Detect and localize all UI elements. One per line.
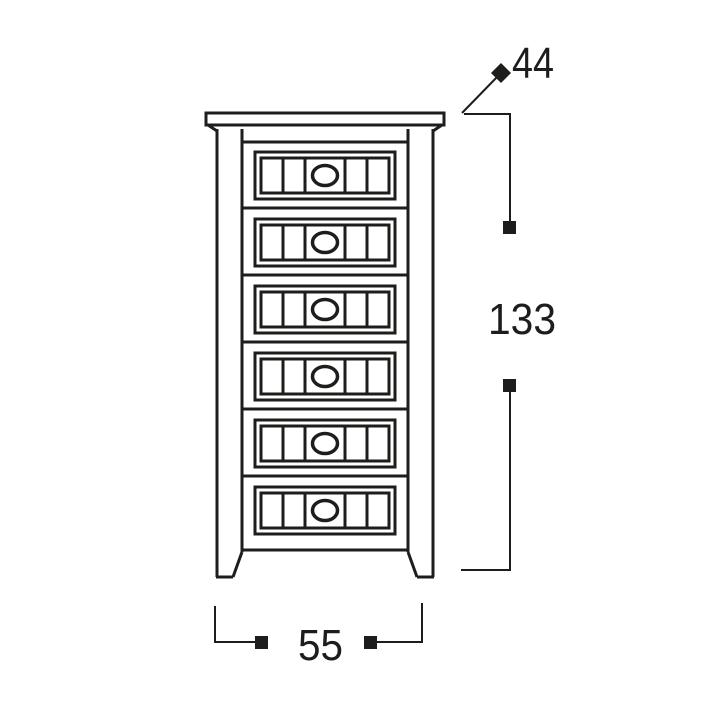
drawer-knob [313, 166, 338, 186]
right-stile-and-leg [408, 129, 434, 577]
drawer-3 [255, 286, 395, 333]
width-value-label: 55 [298, 621, 343, 670]
diagram-canvas: 44 133 55 [0, 0, 713, 713]
height-value-label: 133 [488, 295, 556, 344]
drawer-knob [313, 233, 338, 253]
drawer-2 [255, 219, 395, 266]
square-marker-icon [503, 221, 516, 234]
height-line-lower [461, 392, 510, 570]
square-marker-icon [364, 636, 377, 649]
width-line-right [377, 603, 422, 642]
height-line-upper [464, 114, 510, 221]
dimension-depth: 44 [462, 39, 554, 113]
dresser-drawing [206, 113, 444, 577]
dimension-width: 55 [215, 603, 422, 670]
depth-leader-line [462, 75, 499, 113]
square-marker-icon [255, 636, 268, 649]
drawer-4 [255, 353, 395, 400]
drawer-knob [313, 367, 338, 387]
left-stile-and-leg [216, 129, 242, 577]
cornice-board [206, 113, 444, 125]
width-line-left [215, 606, 255, 642]
drawer-6 [255, 487, 395, 534]
drawer-knob [313, 434, 338, 454]
depth-value-label: 44 [512, 39, 554, 88]
dimension-height: 133 [461, 114, 556, 570]
square-marker-icon [503, 379, 516, 392]
drawer-knob [313, 501, 338, 521]
furniture-dimension-diagram: 44 133 55 [0, 0, 713, 713]
drawer-1 [255, 152, 395, 199]
drawer-5 [255, 420, 395, 467]
cornice [206, 113, 444, 131]
drawer-knob [313, 300, 338, 320]
